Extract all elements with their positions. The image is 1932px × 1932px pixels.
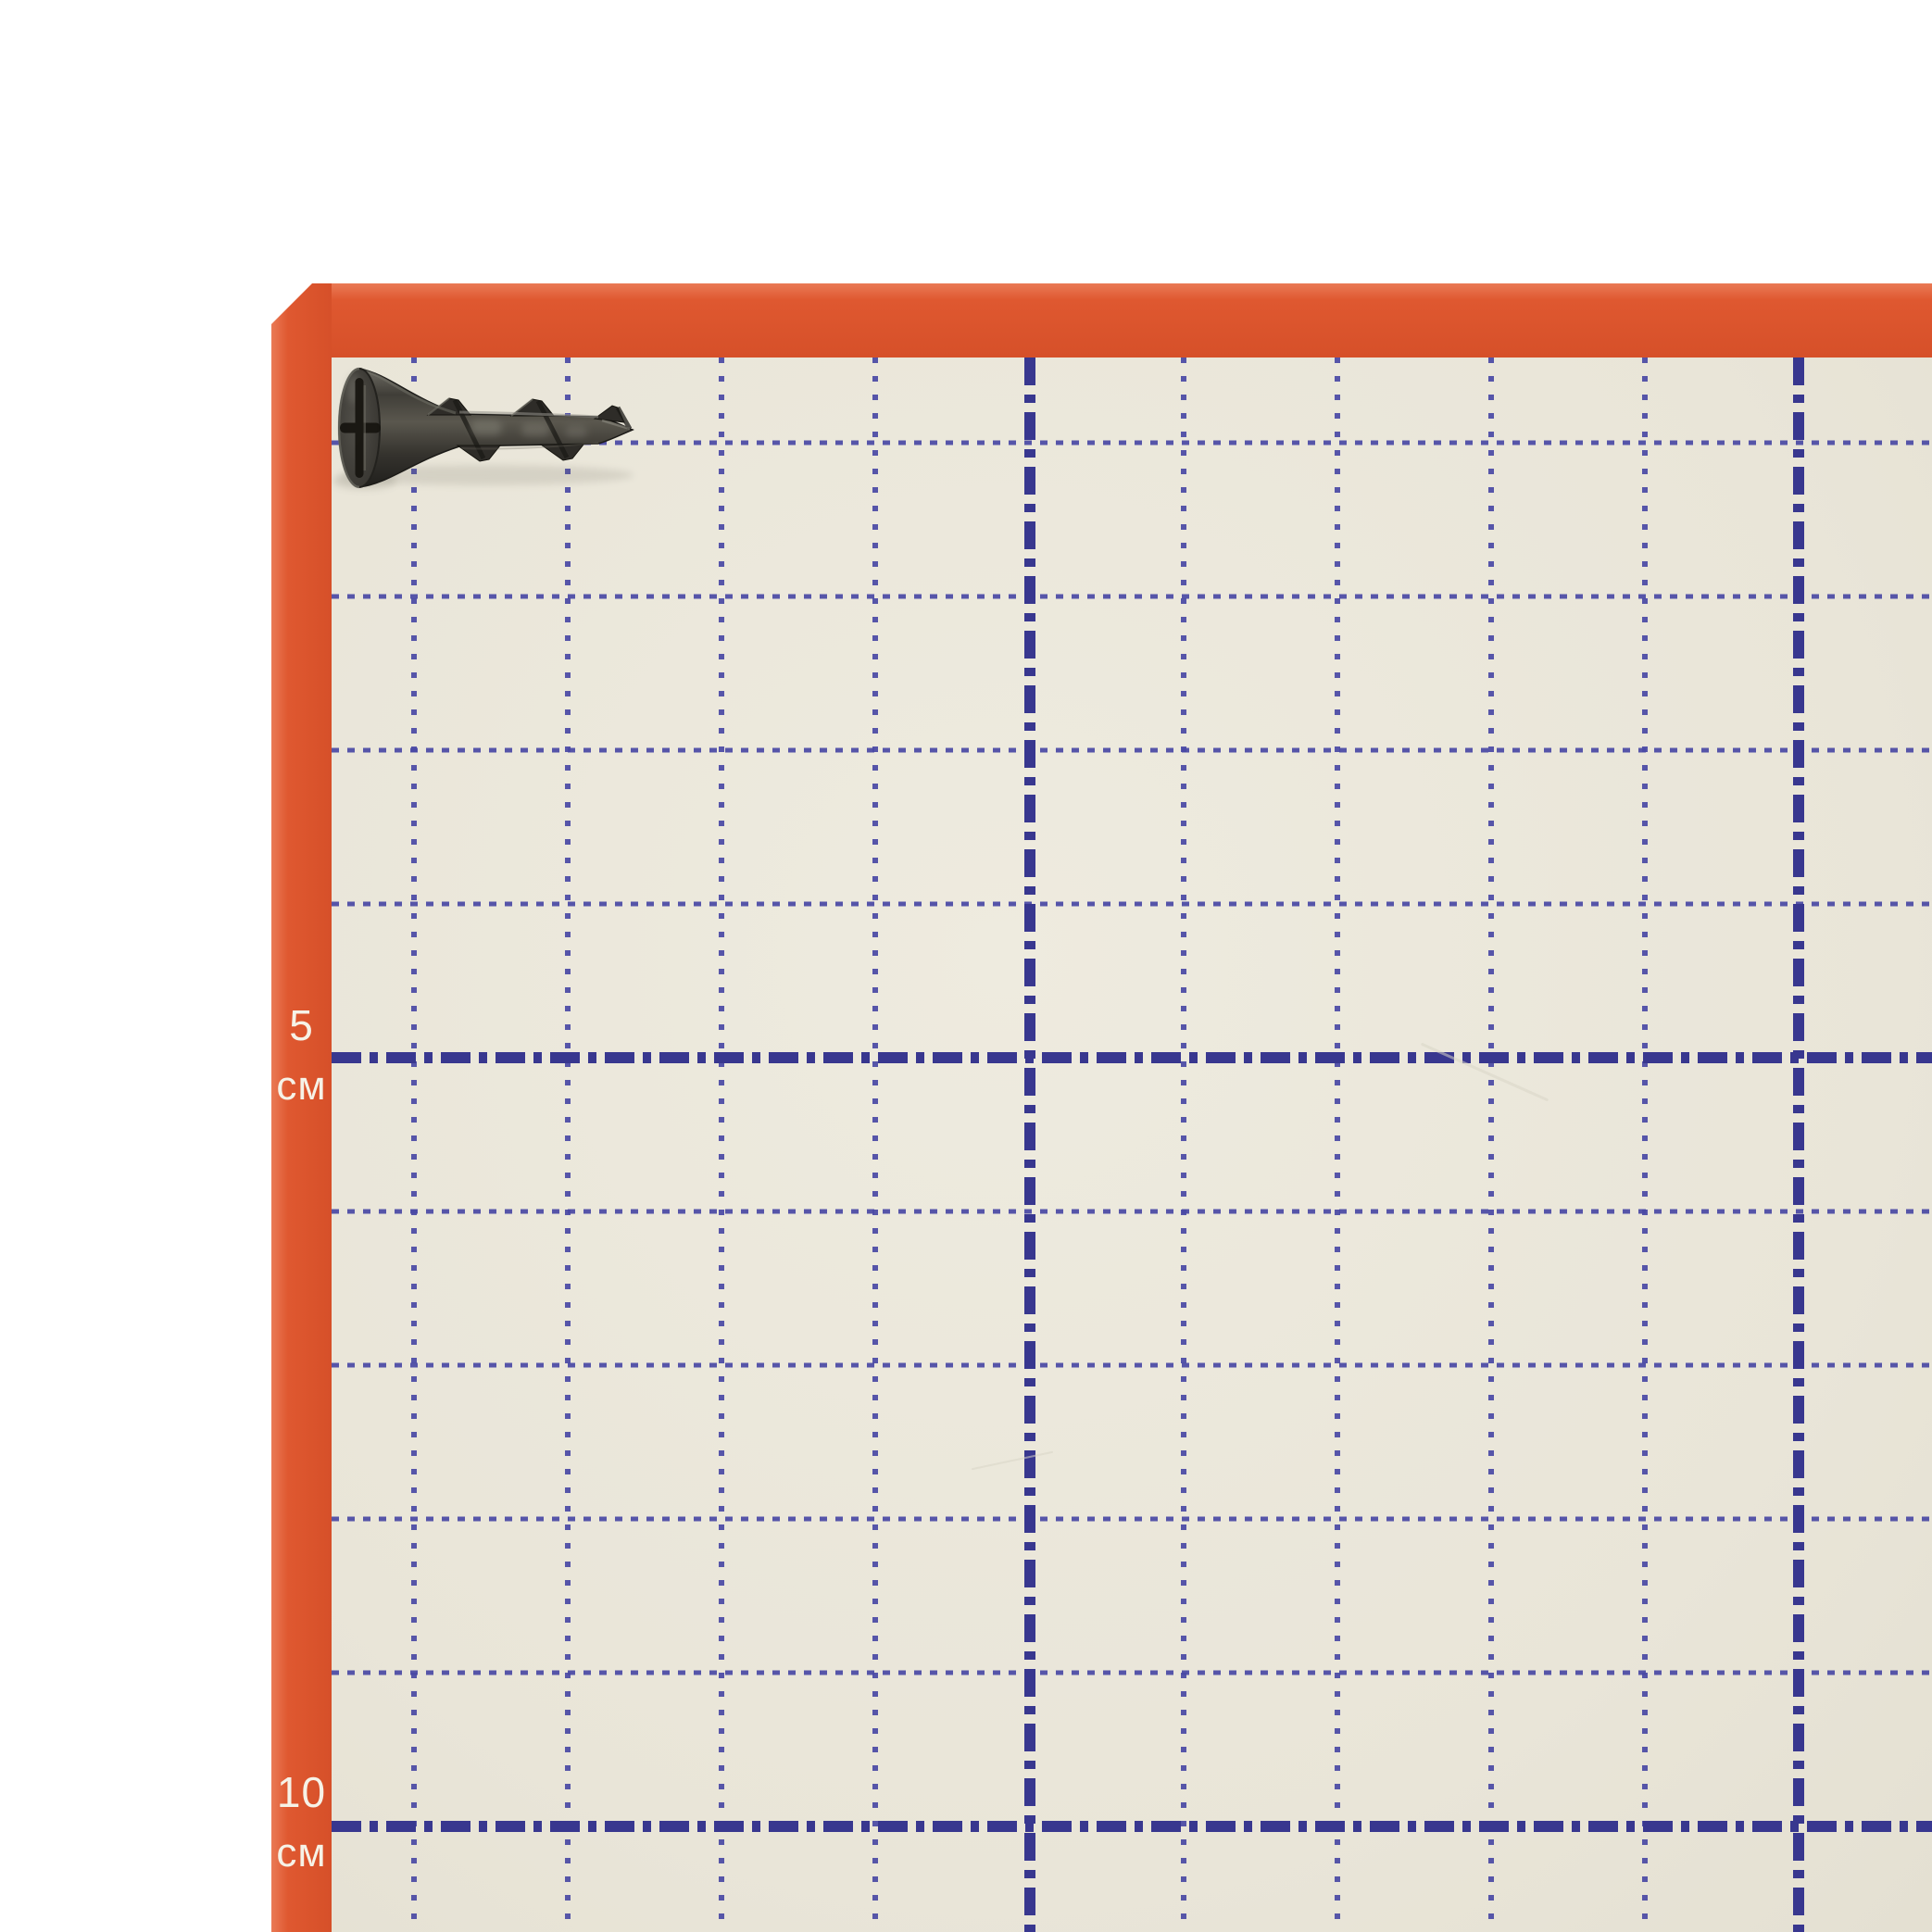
product-photo: 5 см 10 см 5 см 10 см [0,0,1932,1932]
screw-image [332,358,643,498]
ruler-label-left-10cm-unit: см [276,1830,326,1876]
grid-area [332,358,1932,1932]
ruler-top-band: 5 см 10 см [271,283,1932,358]
grid-lines [332,358,1932,1932]
ruler-label-left-10cm-value: 10 [277,1767,326,1817]
ruler-label-left-5cm-value: 5 [289,1000,314,1050]
screw-head [339,369,381,487]
ruler-label-left-5cm-unit: см [276,1063,326,1110]
ruler-label-left-10cm: 10 см [271,1767,332,1876]
recess-edge-highlight [364,385,367,470]
ruler-label-left-5cm: 5 см [271,1000,332,1110]
